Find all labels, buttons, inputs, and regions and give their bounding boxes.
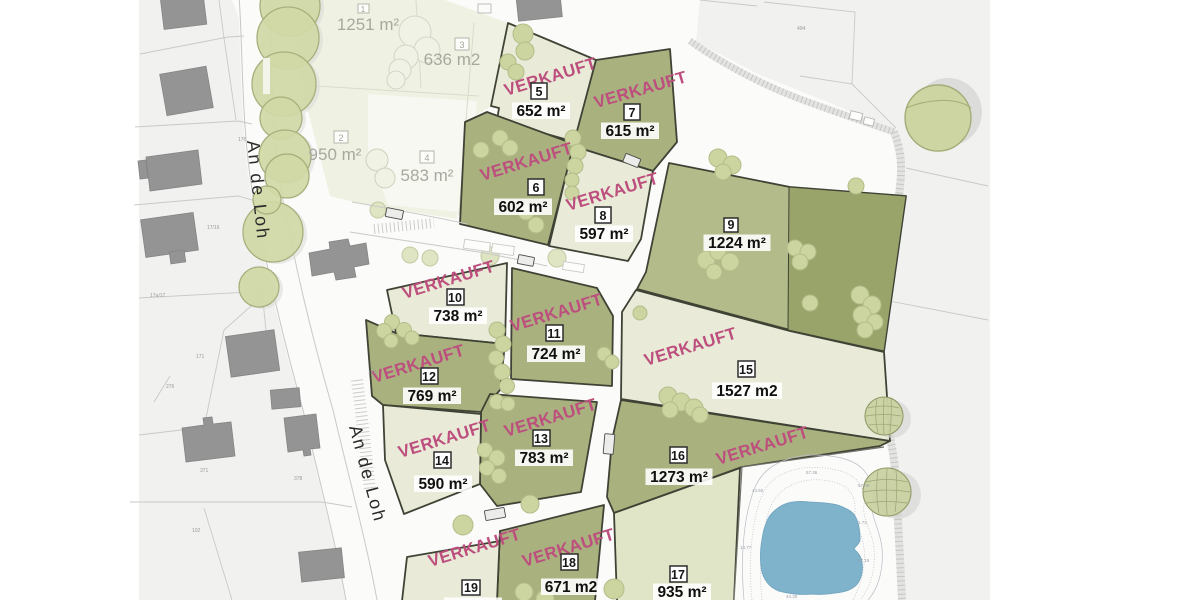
svg-text:57.36: 57.36 bbox=[806, 470, 818, 475]
svg-text:602 m²: 602 m² bbox=[498, 199, 547, 216]
svg-text:17a/17: 17a/17 bbox=[150, 293, 166, 299]
svg-text:171: 171 bbox=[196, 354, 205, 360]
svg-text:57.19: 57.19 bbox=[858, 558, 870, 563]
svg-text:1527 m2: 1527 m2 bbox=[716, 383, 777, 400]
svg-text:15: 15 bbox=[739, 363, 753, 377]
svg-text:769 m²: 769 m² bbox=[407, 388, 456, 405]
svg-text:1: 1 bbox=[361, 5, 366, 14]
svg-text:178: 178 bbox=[368, 370, 377, 376]
svg-text:11: 11 bbox=[547, 327, 560, 341]
svg-text:378: 378 bbox=[294, 476, 303, 482]
svg-text:176: 176 bbox=[238, 137, 247, 143]
svg-text:636 m2: 636 m2 bbox=[424, 50, 481, 69]
svg-text:1224 m²: 1224 m² bbox=[708, 235, 766, 252]
svg-text:44.30: 44.30 bbox=[786, 594, 798, 599]
svg-text:17: 17 bbox=[330, 558, 336, 564]
svg-text:671 m2: 671 m2 bbox=[545, 579, 598, 596]
svg-text:783 m²: 783 m² bbox=[519, 450, 568, 467]
svg-text:724 m²: 724 m² bbox=[531, 346, 580, 363]
svg-text:2: 2 bbox=[338, 133, 343, 143]
svg-text:494: 494 bbox=[797, 26, 806, 32]
svg-text:652 m²: 652 m² bbox=[516, 103, 565, 120]
svg-text:14: 14 bbox=[435, 454, 449, 468]
svg-text:17: 17 bbox=[671, 568, 685, 582]
svg-text:276: 276 bbox=[166, 384, 175, 390]
svg-text:6: 6 bbox=[533, 181, 540, 195]
svg-text:102: 102 bbox=[192, 528, 201, 534]
svg-text:583 m²: 583 m² bbox=[401, 166, 454, 185]
svg-text:9: 9 bbox=[728, 218, 735, 232]
svg-text:19: 19 bbox=[464, 581, 478, 595]
svg-text:16: 16 bbox=[671, 449, 685, 463]
svg-text:3: 3 bbox=[459, 40, 464, 50]
svg-text:17/16: 17/16 bbox=[207, 225, 220, 231]
svg-text:18: 18 bbox=[562, 556, 576, 570]
svg-text:597 m²: 597 m² bbox=[579, 226, 628, 243]
svg-text:14.77: 14.77 bbox=[740, 545, 752, 550]
svg-text:615 m²: 615 m² bbox=[605, 123, 654, 140]
svg-text:590 m²: 590 m² bbox=[418, 476, 467, 493]
svg-text:5: 5 bbox=[536, 85, 543, 99]
svg-text:4: 4 bbox=[424, 153, 429, 163]
svg-text:7: 7 bbox=[629, 106, 636, 120]
svg-text:1251 m²: 1251 m² bbox=[337, 15, 400, 34]
svg-text:935 m²: 935 m² bbox=[657, 584, 706, 600]
svg-text:1.73: 1.73 bbox=[858, 520, 867, 525]
svg-text:371: 371 bbox=[200, 468, 209, 474]
svg-text:1273 m²: 1273 m² bbox=[650, 469, 708, 486]
svg-text:738 m²: 738 m² bbox=[433, 308, 482, 325]
svg-text:13: 13 bbox=[534, 432, 548, 446]
svg-text:950 m²: 950 m² bbox=[309, 145, 362, 164]
svg-text:10: 10 bbox=[448, 291, 462, 305]
svg-text:57.08: 57.08 bbox=[858, 483, 870, 488]
svg-text:12: 12 bbox=[422, 370, 436, 384]
svg-text:8: 8 bbox=[600, 209, 607, 223]
svg-text:44.50: 44.50 bbox=[752, 488, 764, 493]
